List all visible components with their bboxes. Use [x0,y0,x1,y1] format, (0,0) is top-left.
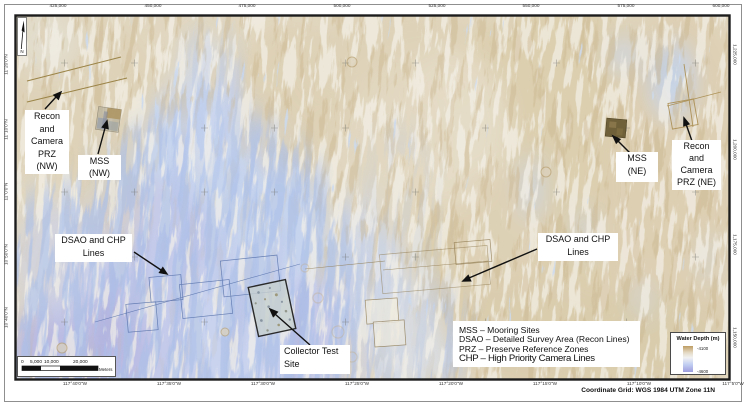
svg-text:N: N [20,49,23,54]
